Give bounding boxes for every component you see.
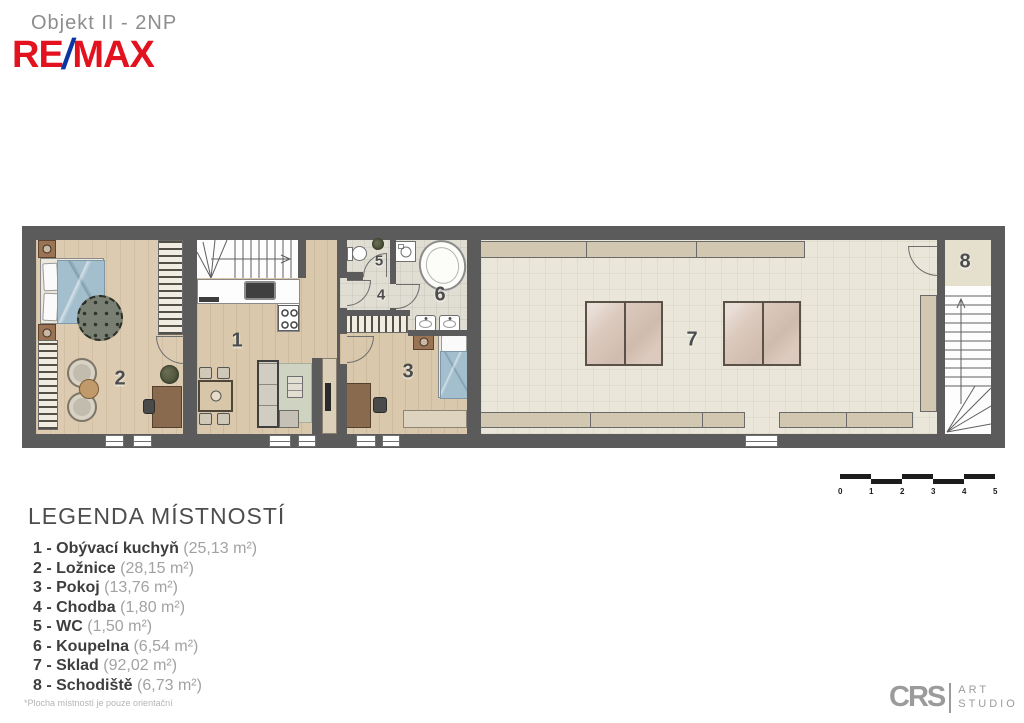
dining-table xyxy=(198,380,233,412)
legend-item: 5 - WC (1,50 m²) xyxy=(33,617,285,637)
toilet xyxy=(352,246,367,261)
legend-item: 3 - Pokoj (13,76 m²) xyxy=(33,578,285,598)
room-label-8: 8 xyxy=(959,251,970,274)
pillow xyxy=(441,335,467,352)
window xyxy=(356,435,376,447)
shelf-divider xyxy=(586,242,587,257)
logo-divider xyxy=(949,683,951,713)
logo-subtext: ART STUDIO xyxy=(958,684,1018,712)
staircase-1-treads xyxy=(197,240,298,278)
wall-segment xyxy=(183,366,197,434)
staircase-room-8 xyxy=(945,286,991,434)
staircase-room-1 xyxy=(197,240,298,278)
legend-item: 2 - Ložnice (28,15 m²) xyxy=(33,559,285,579)
logo-line-art: ART xyxy=(958,684,1018,698)
desk-chair xyxy=(373,397,387,413)
dining-chair xyxy=(199,413,212,425)
wall-segment xyxy=(347,272,363,280)
staircase-8-treads xyxy=(945,286,991,434)
coffee-table xyxy=(287,376,303,398)
legend-item: 4 - Chodba (1,80 m²) xyxy=(33,598,285,618)
legend-list: 1 - Obývací kuchyň (25,13 m²) 2 - Ložnic… xyxy=(28,539,285,695)
window xyxy=(382,435,400,447)
kitchen-sink xyxy=(244,281,276,300)
wall-segment xyxy=(467,240,481,434)
room-label-2: 2 xyxy=(114,368,125,391)
wardrobe xyxy=(38,340,58,430)
wall-segment xyxy=(408,330,467,336)
room-legend: LEGENDA MÍSTNOSTÍ 1 - Obývací kuchyň (25… xyxy=(28,503,285,695)
storage-shelf xyxy=(477,412,745,428)
scale-label: 5 xyxy=(993,487,997,496)
room-label-3: 3 xyxy=(402,361,413,384)
plant xyxy=(160,365,179,384)
dining-chair xyxy=(199,367,212,379)
side-table xyxy=(79,379,99,399)
legend-item: 8 - Schodiště (6,73 m²) xyxy=(33,676,285,696)
scale-label: 0 xyxy=(838,487,842,496)
work-table xyxy=(723,301,801,366)
wardrobe xyxy=(342,315,408,333)
shelf-divider xyxy=(702,413,703,427)
window xyxy=(133,435,152,447)
tv xyxy=(325,383,331,411)
scale-segment xyxy=(964,474,995,479)
wall-segment xyxy=(337,240,347,278)
legend-heading: LEGENDA MÍSTNOSTÍ xyxy=(28,503,285,530)
scale-segment xyxy=(902,474,933,479)
storage-shelf xyxy=(477,241,805,258)
crs-art-studio-logo: CRS ART STUDIO xyxy=(889,681,1018,714)
sofa xyxy=(257,360,279,428)
desk xyxy=(345,383,371,428)
desk-chair xyxy=(143,399,155,414)
room-label-4: 4 xyxy=(377,287,385,304)
room-label-6: 6 xyxy=(434,284,445,307)
page-title: Objekt II - 2NP xyxy=(31,12,177,35)
wall-segment xyxy=(340,310,410,316)
storage-shelf xyxy=(779,412,913,428)
legend-item: 7 - Sklad (92,02 m²) xyxy=(33,656,285,676)
storage-shelf xyxy=(920,295,937,412)
work-table xyxy=(585,301,663,366)
dining-chair xyxy=(217,413,230,425)
scale-label: 1 xyxy=(869,487,873,496)
washing-machine xyxy=(395,241,416,262)
wall-segment xyxy=(937,276,945,434)
floor-plan-page: Objekt II - 2NP RE/MAX xyxy=(0,0,1024,723)
wardrobe xyxy=(158,240,183,335)
shelf-divider xyxy=(846,413,847,427)
window xyxy=(298,435,316,447)
duvet xyxy=(440,351,468,399)
room-label-5: 5 xyxy=(375,253,383,270)
legend-footnote: *Plocha místností je pouze orientační xyxy=(24,698,173,708)
shelf-divider xyxy=(696,242,697,257)
kitchen-shelf xyxy=(199,297,219,302)
wall-segment xyxy=(183,240,197,334)
window xyxy=(745,435,778,447)
scale-segment xyxy=(933,479,964,484)
room-label-7: 7 xyxy=(686,329,697,352)
scale-segment xyxy=(840,474,871,479)
sofa-chaise xyxy=(279,410,299,428)
floor-room-7 xyxy=(481,240,937,434)
desk xyxy=(152,386,182,428)
remax-logo: RE/MAX xyxy=(12,34,154,77)
wall-segment xyxy=(298,240,306,278)
nightstand xyxy=(38,240,56,258)
wall-segment xyxy=(337,364,347,434)
remax-max: MAX xyxy=(72,34,153,76)
wall-segment xyxy=(312,358,322,434)
wall-segment xyxy=(937,240,945,246)
low-shelf xyxy=(403,410,467,428)
scale-label: 3 xyxy=(931,487,935,496)
single-bed xyxy=(438,332,467,398)
scale-label: 4 xyxy=(962,487,966,496)
scale-segment xyxy=(871,479,902,484)
remax-re: RE xyxy=(12,34,63,76)
crs-logo-text: CRS xyxy=(889,681,944,714)
wall-segment xyxy=(390,240,396,284)
scale-label: 2 xyxy=(900,487,904,496)
shelf-divider xyxy=(590,413,591,427)
floor-plan: 1 2 3 4 5 6 7 8 xyxy=(22,226,1005,448)
plant xyxy=(372,238,384,250)
legend-item: 6 - Koupelna (6,54 m²) xyxy=(33,637,285,657)
window xyxy=(269,435,291,447)
logo-line-studio: STUDIO xyxy=(958,698,1018,712)
dining-chair xyxy=(217,367,230,379)
round-rug xyxy=(77,295,123,341)
window xyxy=(105,435,124,447)
scale-bar: 0 1 2 3 4 5 xyxy=(840,474,1000,498)
room-label-1: 1 xyxy=(231,330,242,353)
legend-item: 1 - Obývací kuchyň (25,13 m²) xyxy=(33,539,285,559)
stove xyxy=(278,305,299,331)
